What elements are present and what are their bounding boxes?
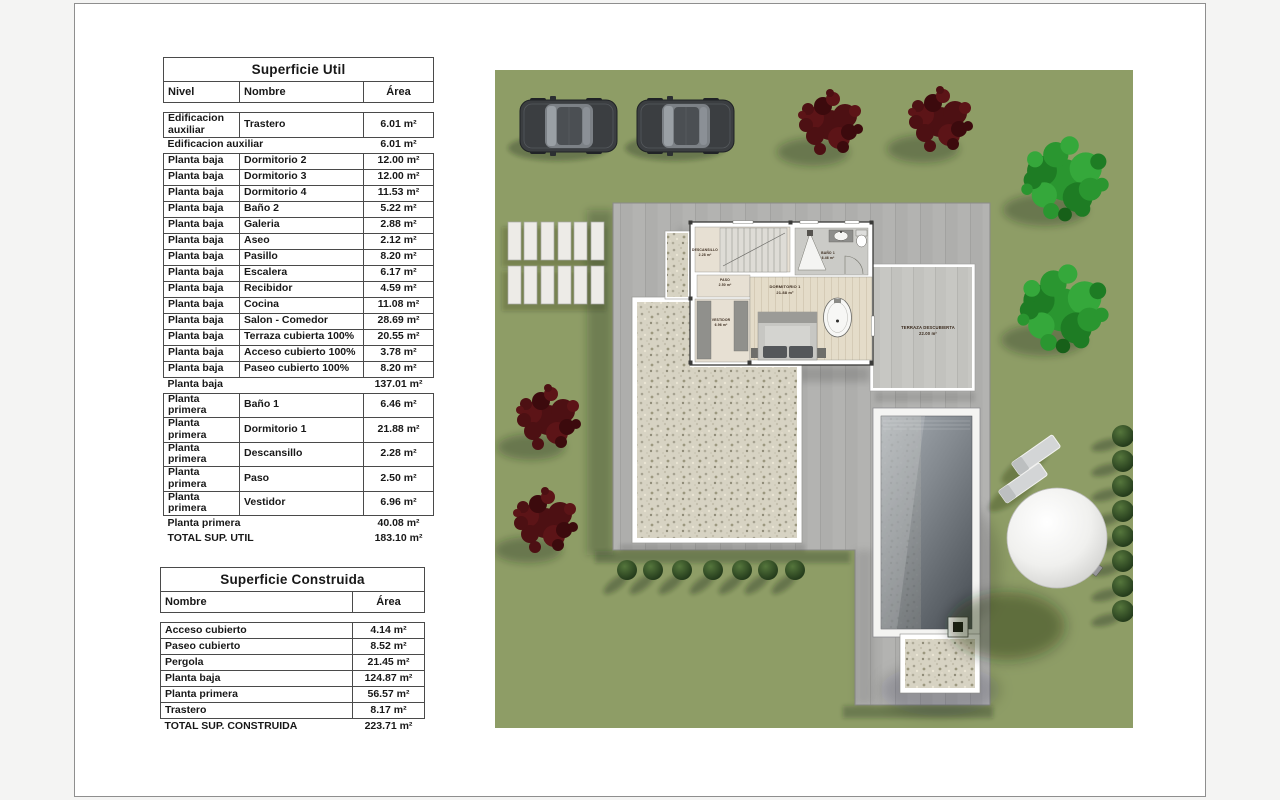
table-row: Planta bajaRecibidor4.59 m²	[164, 281, 434, 297]
label-bano1: BAÑO 1	[821, 250, 835, 255]
label-dormitorio1: DORMITORIO 1	[769, 284, 801, 289]
table-row: Planta bajaSalon - Comedor28.69 m²	[164, 313, 434, 329]
cell-area: 5.22 m²	[364, 201, 434, 217]
cell-label: Planta primera	[164, 516, 364, 532]
cell-area: 2.88 m²	[364, 217, 434, 233]
label-paso: PASO	[720, 278, 730, 282]
cell-nivel: Planta baja	[164, 313, 240, 329]
parasol-shadow	[949, 592, 1065, 660]
label-terraza: TERRAZA DESCUBIERTA	[901, 325, 955, 330]
cell-nivel: Planta baja	[164, 217, 240, 233]
swimming-pool	[873, 408, 980, 637]
pergola-slab	[558, 222, 571, 260]
table-row: Trastero8.17 m²	[161, 703, 425, 719]
bush	[1112, 525, 1133, 547]
label-descansillo-area: 2.28 m²	[699, 253, 712, 257]
cell-area: 21.88 m²	[364, 418, 434, 443]
cell-area: 8.52 m²	[353, 639, 425, 655]
cell-area: 8.20 m²	[364, 249, 434, 265]
cell-nivel: Planta baja	[164, 249, 240, 265]
superficie-util-table: Superficie Util Nivel Nombre Área Edific…	[163, 57, 434, 546]
pergola-slab	[574, 222, 587, 260]
table-row: Planta bajaPaseo cubierto 100%8.20 m²	[164, 361, 434, 377]
header-nombre: Nombre	[161, 592, 353, 613]
cell-nombre: Pasillo	[240, 249, 364, 265]
table-title: Superficie Construida	[161, 568, 425, 592]
table-row: Planta primera56.57 m²	[161, 687, 425, 703]
table-row: Paseo cubierto8.52 m²	[161, 639, 425, 655]
table-row: Pergola21.45 m²	[161, 655, 425, 671]
cell-nombre: Vestidor	[240, 491, 364, 516]
cell-area: 2.12 m²	[364, 233, 434, 249]
plan-sheet-page: Superficie Util Nivel Nombre Área Edific…	[0, 0, 1280, 800]
table-row: Planta bajaEscalera6.17 m²	[164, 265, 434, 281]
cell-nombre: Baño 2	[240, 201, 364, 217]
cell-nivel: Planta baja	[164, 361, 240, 377]
table-spacer	[164, 103, 434, 113]
cell-nombre: Planta primera	[161, 687, 353, 703]
pergola-slab	[574, 266, 587, 304]
cell-nivel: Planta primera	[164, 442, 240, 467]
label-bano1-area: 6.46 m²	[822, 256, 835, 260]
bush	[1112, 500, 1133, 522]
cell-nivel: Planta baja	[164, 297, 240, 313]
cell-nombre: Salon - Comedor	[240, 313, 364, 329]
superficie-util-section: Superficie Util Nivel Nombre Área Edific…	[163, 57, 434, 546]
sink	[829, 230, 853, 242]
cell-area: 6.01 m²	[364, 137, 434, 153]
stairs	[720, 228, 787, 272]
table-row: Edificacion auxiliar6.01 m²	[164, 137, 434, 153]
table-row: Planta bajaCocina11.08 m²	[164, 297, 434, 313]
cell-area: 4.59 m²	[364, 281, 434, 297]
superficie-construida-table: Superficie Construida Nombre Área Acceso…	[160, 567, 425, 734]
header-nivel: Nivel	[164, 82, 240, 103]
table-title-row: Superficie Util	[164, 58, 434, 82]
table-row: Planta primeraVestidor6.96 m²	[164, 491, 434, 516]
cell-nombre: Acceso cubierto 100%	[240, 345, 364, 361]
bush	[703, 560, 723, 580]
cell-nombre: Trastero	[240, 113, 364, 138]
table-title: Superficie Util	[164, 58, 434, 82]
header-area: Área	[364, 82, 434, 103]
pergola-slab	[541, 266, 554, 304]
cell-nombre: Pergola	[161, 655, 353, 671]
cell-area: 56.57 m²	[353, 687, 425, 703]
cell-nivel: Planta baja	[164, 169, 240, 185]
cell-label: TOTAL SUP. CONSTRUIDA	[161, 719, 353, 735]
car	[637, 96, 734, 156]
label-paso-area: 2.50 m²	[719, 283, 732, 287]
table-row: Acceso cubierto4.14 m²	[161, 623, 425, 639]
cell-nombre: Dormitorio 3	[240, 169, 364, 185]
cell-nombre: Paseo cubierto 100%	[240, 361, 364, 377]
util-table-body: Edificacion auxiliarTrastero6.01 m²Edifi…	[164, 113, 434, 547]
cell-area: 20.55 m²	[364, 329, 434, 345]
cell-nombre: Dormitorio 1	[240, 418, 364, 443]
cell-area: 137.01 m²	[364, 377, 434, 393]
cell-area: 4.14 m²	[353, 623, 425, 639]
bush	[785, 560, 805, 580]
cell-nivel: Planta baja	[164, 185, 240, 201]
bush	[1112, 425, 1133, 447]
cell-nombre: Escalera	[240, 265, 364, 281]
table-row: Planta bajaAcceso cubierto 100%3.78 m²	[164, 345, 434, 361]
bush	[1112, 450, 1133, 472]
table-row: Planta primeraDescansillo2.28 m²	[164, 442, 434, 467]
table-row: Planta baja124.87 m²	[161, 671, 425, 687]
table-row: Planta bajaTerraza cubierta 100%20.55 m²	[164, 329, 434, 345]
gravel-strip	[665, 231, 690, 299]
cell-nivel: Planta primera	[164, 393, 240, 418]
bathtub	[824, 298, 852, 337]
cell-label: TOTAL SUP. UTIL	[164, 531, 364, 546]
cell-nombre: Dormitorio 4	[240, 185, 364, 201]
bed	[751, 312, 826, 360]
cell-nombre: Trastero	[161, 703, 353, 719]
table-row: TOTAL SUP. CONSTRUIDA223.71 m²	[161, 719, 425, 735]
pergola-slab	[591, 266, 604, 304]
bush	[1112, 475, 1133, 497]
cell-nivel: Planta baja	[164, 265, 240, 281]
label-terraza-area: 22.00 m²	[919, 331, 937, 336]
table-title-row: Superficie Construida	[161, 568, 425, 592]
cell-nombre: Galeria	[240, 217, 364, 233]
table-spacer	[161, 613, 425, 623]
superficie-construida-section: Superficie Construida Nombre Área Acceso…	[160, 567, 425, 734]
bush	[617, 560, 637, 580]
cell-nivel: Edificacion auxiliar	[164, 113, 240, 138]
toilet	[856, 230, 867, 247]
site-plan: DESCANSILLO 2.28 m² BAÑO 1 6.46 m² PASO …	[495, 70, 1133, 728]
cell-area: 6.96 m²	[364, 491, 434, 516]
construida-table-body: Acceso cubierto4.14 m²Paseo cubierto8.52…	[161, 623, 425, 735]
cell-area: 21.45 m²	[353, 655, 425, 671]
table-header-row: Nivel Nombre Área	[164, 82, 434, 103]
label-vestidor-area: 6.96 m²	[715, 323, 728, 327]
cell-nombre: Baño 1	[240, 393, 364, 418]
cell-nombre: Acceso cubierto	[161, 623, 353, 639]
pergola-slab	[541, 222, 554, 260]
cell-label: Edificacion auxiliar	[164, 137, 364, 153]
cell-nombre: Aseo	[240, 233, 364, 249]
table-header-row: Nombre Área	[161, 592, 425, 613]
table-row: Planta primeraDormitorio 121.88 m²	[164, 418, 434, 443]
cell-area: 6.46 m²	[364, 393, 434, 418]
header-area: Área	[353, 592, 425, 613]
table-row: Planta bajaDormitorio 212.00 m²	[164, 153, 434, 169]
label-vestidor: VESTIDOR	[712, 318, 731, 322]
table-row: Planta primeraPaso2.50 m²	[164, 467, 434, 492]
bush	[672, 560, 692, 580]
table-row: Planta bajaGaleria2.88 m²	[164, 217, 434, 233]
table-row: Planta bajaAseo2.12 m²	[164, 233, 434, 249]
table-row: Planta bajaPasillo8.20 m²	[164, 249, 434, 265]
cell-nivel: Planta baja	[164, 233, 240, 249]
bush	[732, 560, 752, 580]
cell-nombre: Paseo cubierto	[161, 639, 353, 655]
cell-nivel: Planta baja	[164, 345, 240, 361]
cell-area: 12.00 m²	[364, 169, 434, 185]
cell-nombre: Cocina	[240, 297, 364, 313]
cell-nivel: Planta baja	[164, 329, 240, 345]
bush	[643, 560, 663, 580]
cell-nivel: Planta baja	[164, 281, 240, 297]
cell-nombre: Paso	[240, 467, 364, 492]
label-descansillo: DESCANSILLO	[692, 248, 718, 252]
cell-area: 12.00 m²	[364, 153, 434, 169]
pergola-slab	[524, 266, 537, 304]
cell-nombre: Recibidor	[240, 281, 364, 297]
cell-area: 124.87 m²	[353, 671, 425, 687]
pergola-slab	[524, 222, 537, 260]
cell-area: 8.20 m²	[364, 361, 434, 377]
cell-nivel: Planta primera	[164, 467, 240, 492]
cell-area: 11.53 m²	[364, 185, 434, 201]
bush	[1112, 550, 1133, 572]
cell-nivel: Planta primera	[164, 491, 240, 516]
cell-area: 6.01 m²	[364, 113, 434, 138]
cell-area: 11.08 m²	[364, 297, 434, 313]
table-row: Planta primeraBaño 16.46 m²	[164, 393, 434, 418]
pergola-slab	[591, 222, 604, 260]
cell-nivel: Planta baja	[164, 153, 240, 169]
table-row: Planta primera40.08 m²	[164, 516, 434, 532]
cell-area: 6.17 m²	[364, 265, 434, 281]
bush	[758, 560, 778, 580]
table-row: Planta bajaBaño 25.22 m²	[164, 201, 434, 217]
pergola-slab	[508, 266, 521, 304]
cell-area: 28.69 m²	[364, 313, 434, 329]
cell-nivel: Planta primera	[164, 418, 240, 443]
cell-area: 3.78 m²	[364, 345, 434, 361]
pergola-slab	[508, 222, 521, 260]
cell-area: 40.08 m²	[364, 516, 434, 532]
cell-label: Planta baja	[164, 377, 364, 393]
cell-nombre: Terraza cubierta 100%	[240, 329, 364, 345]
header-nombre: Nombre	[240, 82, 364, 103]
table-row: Planta bajaDormitorio 312.00 m²	[164, 169, 434, 185]
label-dormitorio1-area: 21.88 m²	[776, 290, 794, 295]
cell-nivel: Planta baja	[164, 201, 240, 217]
cell-area: 2.28 m²	[364, 442, 434, 467]
cell-nombre: Descansillo	[240, 442, 364, 467]
table-row: TOTAL SUP. UTIL183.10 m²	[164, 531, 434, 546]
table-row: Planta bajaDormitorio 411.53 m²	[164, 185, 434, 201]
pergola-slab	[558, 266, 571, 304]
cell-area: 8.17 m²	[353, 703, 425, 719]
table-row: Edificacion auxiliarTrastero6.01 m²	[164, 113, 434, 138]
parasol	[1007, 488, 1107, 588]
cell-nombre: Dormitorio 2	[240, 153, 364, 169]
cell-area: 183.10 m²	[364, 531, 434, 546]
cell-area: 223.71 m²	[353, 719, 425, 735]
car	[520, 96, 617, 156]
cell-area: 2.50 m²	[364, 467, 434, 492]
bush	[1112, 600, 1133, 622]
table-row: Planta baja137.01 m²	[164, 377, 434, 393]
cell-nombre: Planta baja	[161, 671, 353, 687]
bush	[1112, 575, 1133, 597]
